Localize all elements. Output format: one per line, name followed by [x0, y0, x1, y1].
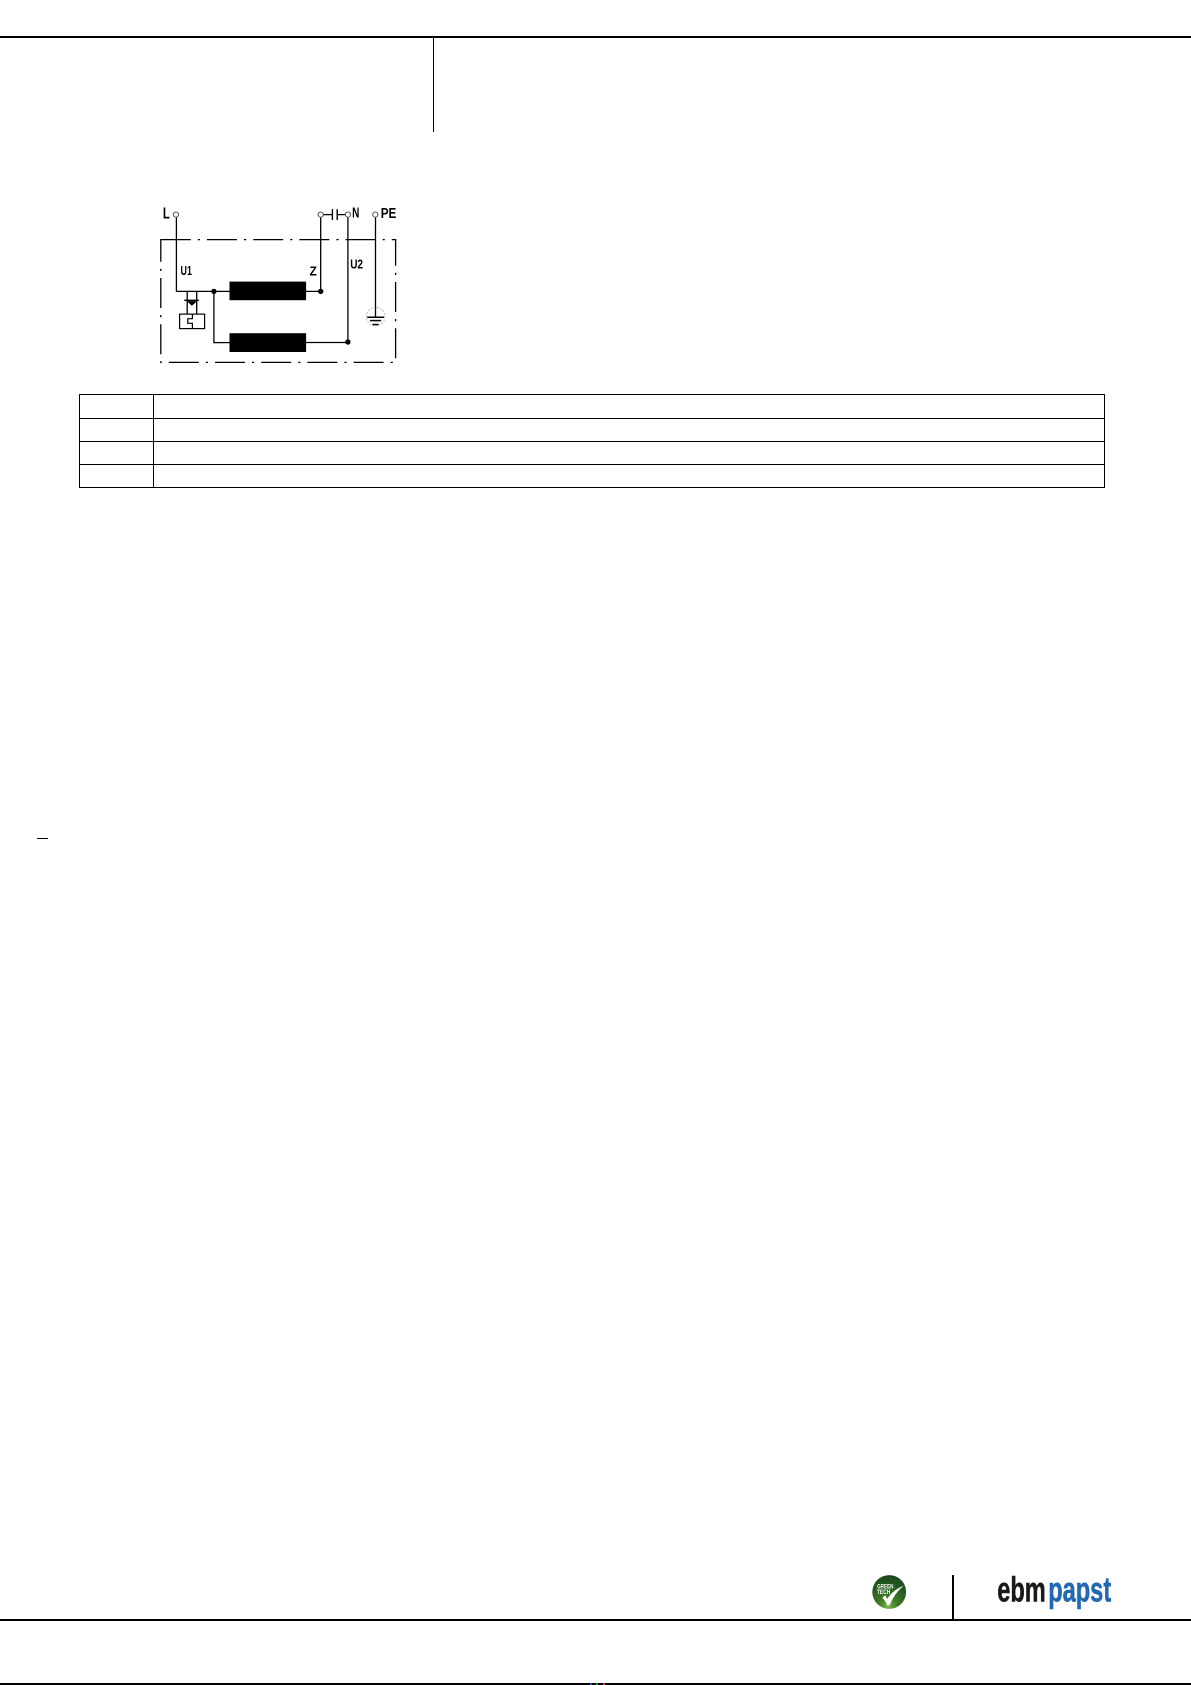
svg-text:U1: U1: [181, 263, 192, 278]
svg-text:TECH: TECH: [877, 1589, 890, 1596]
svg-text:N: N: [352, 205, 359, 222]
svg-text:ebm: ebm: [997, 1570, 1046, 1610]
svg-text:U2: U2: [350, 256, 363, 271]
svg-text:L: L: [163, 206, 170, 223]
svg-text:Z: Z: [310, 263, 317, 278]
svg-text:papst: papst: [1048, 1570, 1111, 1610]
svg-text:PE: PE: [381, 205, 397, 222]
